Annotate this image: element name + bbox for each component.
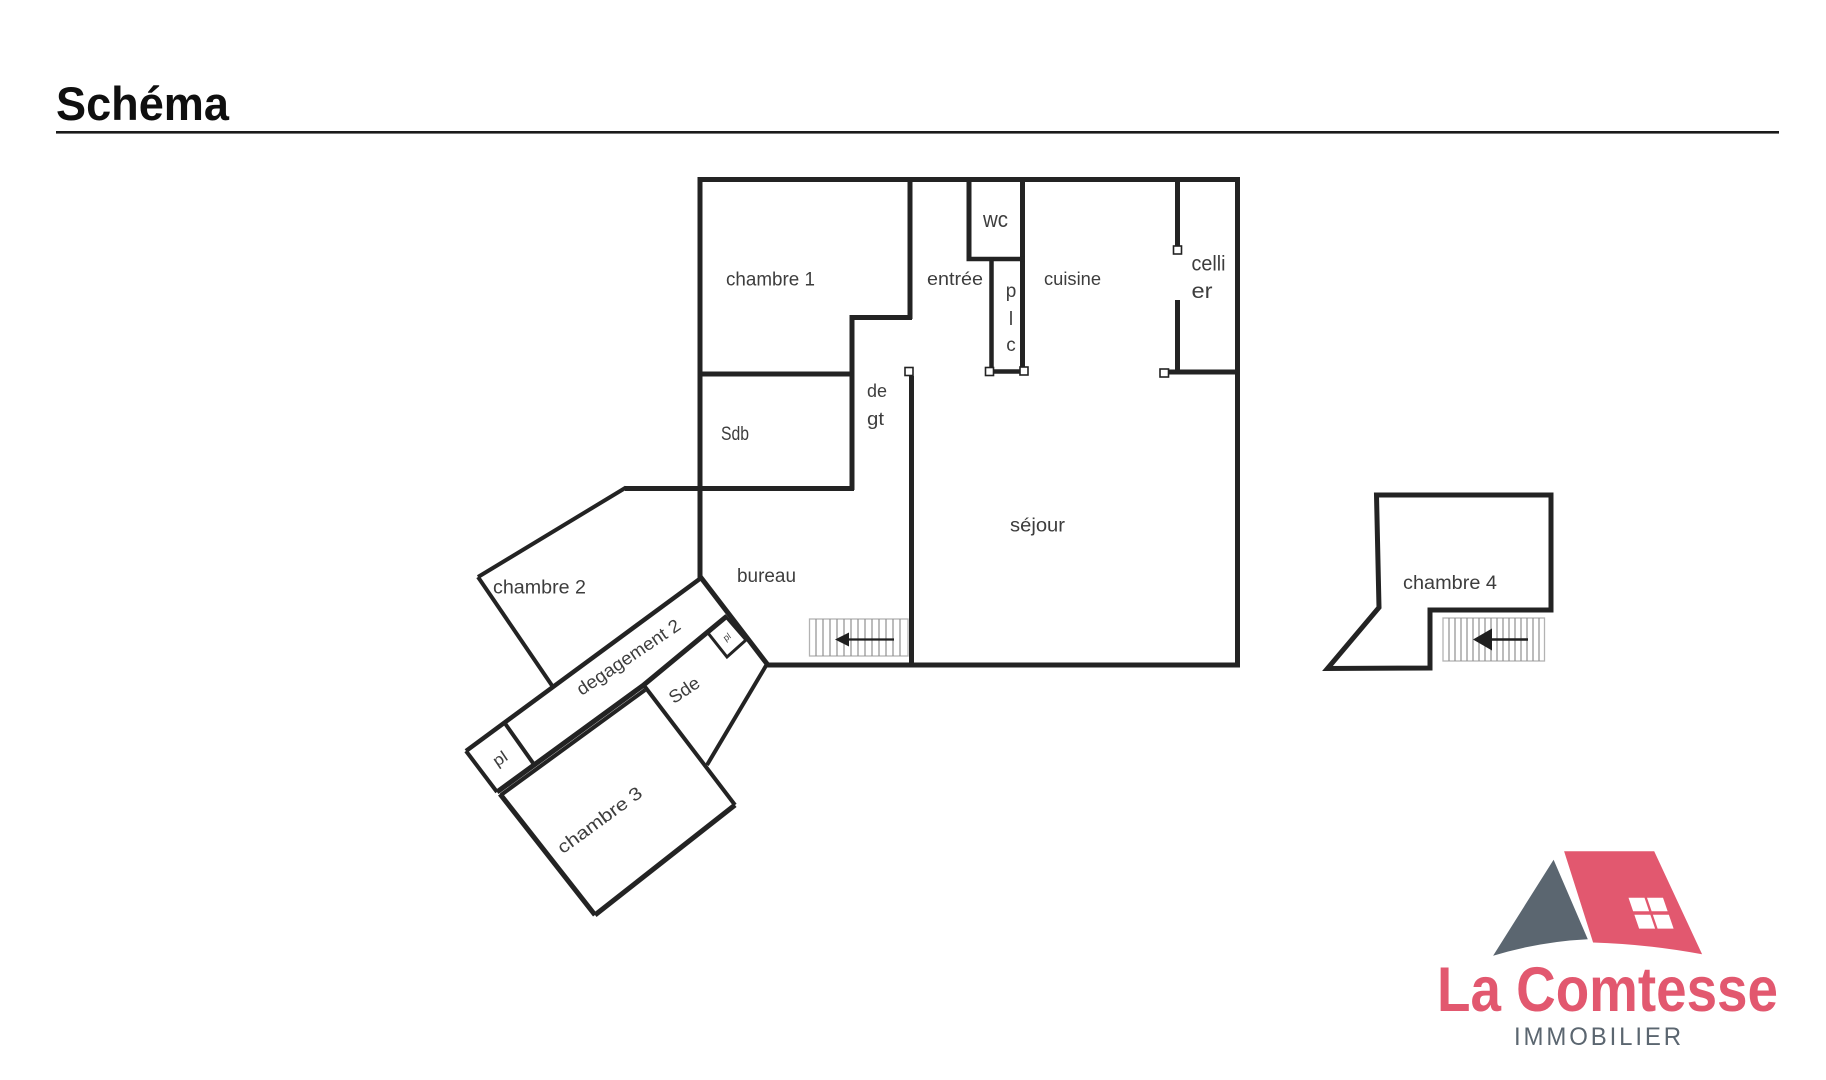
svg-text:celli: celli <box>1192 253 1226 276</box>
svg-text:c: c <box>1006 335 1016 356</box>
svg-text:wc: wc <box>982 207 1008 232</box>
svg-text:chambre 2: chambre 2 <box>493 578 586 599</box>
svg-text:séjour: séjour <box>1010 516 1066 537</box>
svg-text:Schéma: Schéma <box>56 77 230 130</box>
svg-text:gt: gt <box>867 409 884 429</box>
svg-text:IMMOBILIER: IMMOBILIER <box>1514 1023 1684 1051</box>
svg-text:de: de <box>867 381 887 401</box>
svg-text:bureau: bureau <box>737 566 796 587</box>
svg-text:chambre 4: chambre 4 <box>1403 573 1497 594</box>
svg-text:p: p <box>1006 281 1017 302</box>
svg-text:La Comtesse: La Comtesse <box>1437 955 1778 1025</box>
svg-text:chambre 1: chambre 1 <box>726 270 815 291</box>
svg-text:Sdb: Sdb <box>721 423 749 445</box>
svg-text:entrée: entrée <box>927 269 983 289</box>
svg-text:cuisine: cuisine <box>1044 269 1101 289</box>
svg-text:l: l <box>1009 309 1013 330</box>
svg-text:er: er <box>1192 280 1213 303</box>
